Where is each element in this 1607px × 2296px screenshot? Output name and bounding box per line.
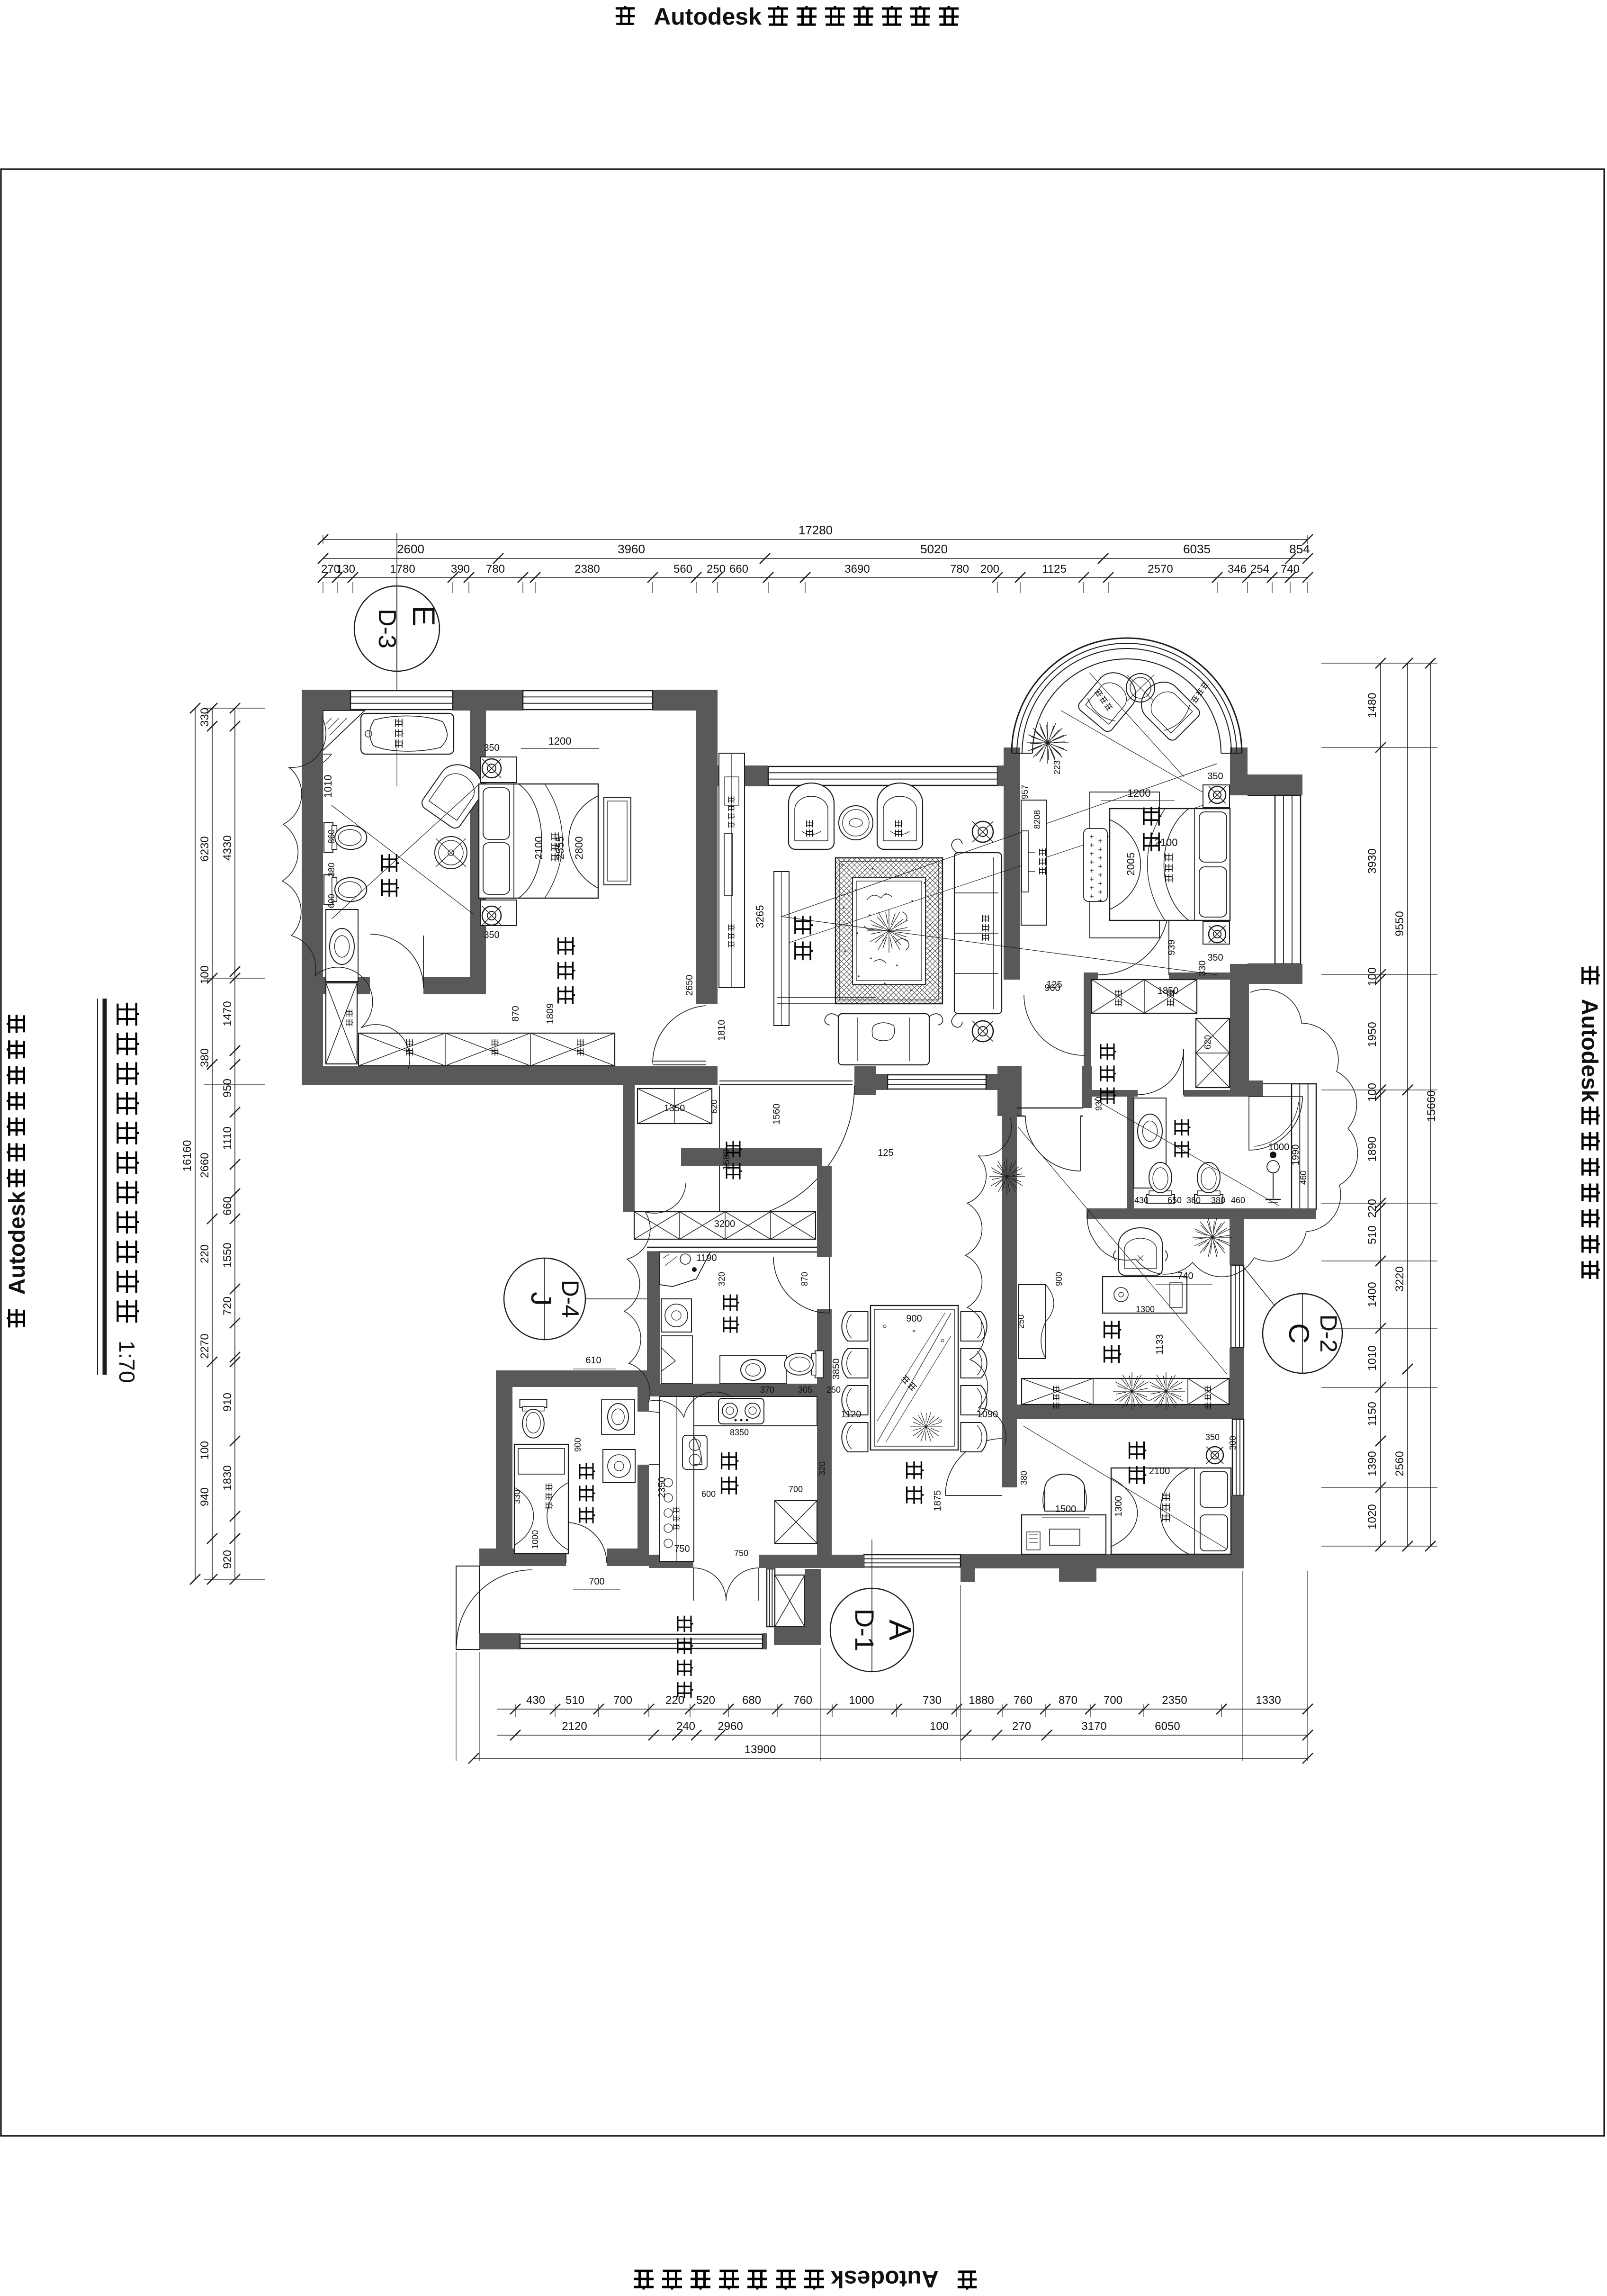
svg-text:460: 460	[1231, 1196, 1245, 1205]
svg-text:1500: 1500	[1055, 1504, 1077, 1514]
svg-text:1200: 1200	[548, 735, 572, 747]
svg-text:9550: 9550	[1393, 911, 1406, 936]
svg-text:3170: 3170	[1081, 1720, 1106, 1733]
svg-text:750: 750	[674, 1544, 690, 1554]
svg-text:3850: 3850	[831, 1359, 842, 1380]
svg-text:740: 740	[1281, 563, 1300, 576]
svg-text:2570: 2570	[1148, 563, 1173, 576]
svg-text:860: 860	[327, 829, 336, 844]
svg-text:2100: 2100	[1149, 1466, 1170, 1477]
svg-text:1125: 1125	[1042, 563, 1067, 576]
svg-text:1950: 1950	[1366, 1022, 1379, 1047]
svg-text:910: 910	[221, 1393, 234, 1412]
svg-text:1890: 1890	[1366, 1136, 1379, 1162]
svg-text:900: 900	[906, 1314, 922, 1324]
svg-text:520: 520	[696, 1694, 715, 1707]
svg-text:870: 870	[1059, 1694, 1077, 1707]
svg-text:250: 250	[1016, 1315, 1026, 1329]
svg-text:1830: 1830	[221, 1465, 234, 1490]
svg-text:1010: 1010	[1366, 1345, 1379, 1370]
svg-text:1000: 1000	[849, 1694, 874, 1707]
svg-text:660: 660	[221, 1197, 234, 1216]
svg-text:D-4: D-4	[557, 1280, 584, 1318]
svg-text:8208: 8208	[1032, 810, 1042, 829]
svg-text:2350: 2350	[1162, 1694, 1187, 1707]
svg-text:1875: 1875	[933, 1490, 943, 1512]
svg-text:350: 350	[484, 930, 499, 940]
svg-text:660: 660	[729, 563, 748, 576]
svg-text:300: 300	[1228, 1436, 1238, 1450]
svg-text:380: 380	[1211, 1196, 1225, 1205]
svg-text:610: 610	[585, 1355, 601, 1366]
svg-text:600: 600	[327, 894, 336, 908]
svg-text:680: 680	[742, 1694, 761, 1707]
svg-text:900: 900	[1054, 1272, 1064, 1286]
svg-text:2650: 2650	[684, 975, 695, 996]
svg-text:1190: 1190	[696, 1253, 717, 1263]
svg-text:320: 320	[717, 1272, 727, 1286]
svg-text:750: 750	[734, 1549, 748, 1558]
svg-text:C: C	[1283, 1323, 1315, 1343]
svg-text:1470: 1470	[221, 1001, 234, 1026]
svg-text:3690: 3690	[844, 563, 870, 576]
svg-text:940: 940	[198, 1487, 211, 1506]
svg-text:957: 957	[1020, 785, 1030, 799]
svg-text:1133: 1133	[1155, 1334, 1165, 1354]
svg-text:650: 650	[1167, 1196, 1182, 1205]
svg-text:780: 780	[486, 563, 505, 576]
svg-text:13900: 13900	[745, 1743, 776, 1756]
svg-text:2005: 2005	[1125, 853, 1137, 876]
svg-text:100: 100	[198, 1441, 211, 1460]
svg-text:A: A	[883, 1620, 918, 1640]
svg-text:510: 510	[566, 1694, 584, 1707]
svg-text:254: 254	[1250, 563, 1269, 576]
svg-text:1880: 1880	[969, 1694, 994, 1707]
svg-text:1480: 1480	[1366, 693, 1379, 718]
svg-text:380: 380	[198, 1048, 211, 1067]
svg-text:1400: 1400	[1366, 1282, 1379, 1307]
svg-text:220: 220	[665, 1694, 684, 1707]
svg-text:1000: 1000	[1268, 1142, 1290, 1153]
svg-text:1110: 1110	[221, 1126, 234, 1150]
svg-text:E: E	[406, 605, 441, 626]
svg-text:900: 900	[573, 1438, 583, 1452]
svg-text:854: 854	[1289, 542, 1310, 556]
svg-text:330: 330	[1197, 960, 1208, 976]
svg-text:700: 700	[613, 1694, 632, 1707]
svg-text:1010: 1010	[322, 775, 334, 798]
svg-text:2100: 2100	[533, 837, 545, 860]
svg-text:3265: 3265	[754, 905, 766, 928]
svg-text:3960: 3960	[618, 542, 645, 556]
svg-text:430: 430	[526, 1694, 545, 1707]
svg-text:560: 560	[673, 563, 692, 576]
svg-text:1300: 1300	[1113, 1496, 1124, 1517]
svg-text:700: 700	[789, 1485, 803, 1494]
svg-text:305: 305	[798, 1385, 812, 1395]
svg-text:16160: 16160	[181, 1140, 194, 1172]
svg-text:100: 100	[1366, 967, 1379, 986]
svg-text:350: 350	[484, 743, 499, 753]
svg-text:3220: 3220	[1393, 1266, 1406, 1291]
svg-text:Autodesk: Autodesk	[5, 1191, 30, 1295]
svg-text:1300: 1300	[1136, 1305, 1155, 1314]
svg-text:920: 920	[221, 1550, 234, 1569]
svg-text:4330: 4330	[221, 835, 234, 860]
svg-text:100: 100	[930, 1720, 949, 1733]
svg-text:1200: 1200	[1128, 787, 1151, 799]
svg-text:D-2: D-2	[1315, 1315, 1342, 1353]
svg-text:8350: 8350	[730, 1428, 749, 1437]
svg-text:380: 380	[327, 863, 336, 877]
svg-text:200: 200	[980, 563, 999, 576]
svg-text:1809: 1809	[545, 1003, 556, 1025]
svg-text:720: 720	[221, 1297, 234, 1315]
svg-text:J: J	[525, 1292, 557, 1306]
svg-text:330: 330	[198, 708, 211, 727]
svg-text:1990: 1990	[1291, 1144, 1301, 1166]
svg-text:939: 939	[1167, 939, 1177, 955]
svg-text:5020: 5020	[920, 542, 948, 556]
svg-text:3200: 3200	[714, 1219, 736, 1229]
svg-text:2800: 2800	[573, 837, 585, 860]
svg-text:430: 430	[1134, 1196, 1149, 1205]
svg-text:2960: 2960	[718, 1720, 743, 1733]
svg-text:1330: 1330	[1256, 1694, 1281, 1707]
svg-text:620: 620	[1203, 1035, 1212, 1049]
svg-text:220: 220	[1366, 1199, 1379, 1218]
svg-text:220: 220	[198, 1244, 211, 1263]
svg-text:130: 130	[336, 563, 355, 576]
svg-text:Autodesk: Autodesk	[831, 2266, 939, 2292]
svg-text:223: 223	[1052, 760, 1062, 774]
svg-text:17280: 17280	[799, 523, 833, 537]
svg-text:330: 330	[512, 1490, 522, 1504]
svg-text:346: 346	[1228, 563, 1247, 576]
svg-text:2350: 2350	[657, 1477, 667, 1498]
svg-text:Autodesk: Autodesk	[1577, 999, 1602, 1103]
svg-text:350: 350	[1207, 953, 1223, 963]
svg-text:1020: 1020	[1366, 1504, 1379, 1529]
svg-text:350: 350	[1205, 1432, 1220, 1442]
svg-text:125: 125	[878, 1148, 893, 1158]
svg-text:370: 370	[760, 1385, 774, 1395]
svg-text:780: 780	[950, 563, 969, 576]
svg-text:2270: 2270	[198, 1333, 211, 1359]
svg-text:2660: 2660	[198, 1153, 211, 1178]
svg-text:6230: 6230	[198, 836, 211, 861]
svg-text:760: 760	[1014, 1694, 1032, 1707]
svg-text:380: 380	[1019, 1471, 1029, 1485]
svg-text:1000: 1000	[530, 1530, 540, 1549]
svg-text:100: 100	[1366, 1083, 1379, 1102]
svg-text:D-1: D-1	[850, 1609, 880, 1651]
svg-text:250: 250	[826, 1385, 841, 1395]
svg-text:700: 700	[1104, 1694, 1122, 1707]
svg-text:320: 320	[817, 1461, 827, 1476]
svg-text:1150: 1150	[1366, 1402, 1379, 1426]
svg-text:250: 250	[707, 563, 726, 576]
svg-text:Autodesk: Autodesk	[654, 3, 762, 30]
svg-text:600: 600	[701, 1489, 716, 1499]
svg-text:2120: 2120	[562, 1720, 587, 1733]
svg-text:460: 460	[1299, 1171, 1308, 1185]
svg-text:870: 870	[511, 1006, 521, 1021]
svg-text:760: 760	[793, 1694, 812, 1707]
svg-text:360: 360	[1186, 1196, 1201, 1205]
svg-text:240: 240	[676, 1720, 695, 1733]
svg-text:1120: 1120	[841, 1409, 861, 1420]
svg-text:1780: 1780	[390, 563, 415, 576]
svg-text:100: 100	[198, 965, 211, 984]
svg-text:510: 510	[1366, 1225, 1379, 1244]
svg-text:1560: 1560	[772, 1104, 782, 1125]
svg-text:390: 390	[451, 563, 470, 576]
svg-text:730: 730	[923, 1694, 942, 1707]
svg-text:870: 870	[800, 1272, 809, 1286]
svg-text:1350: 1350	[664, 1103, 685, 1114]
svg-text:960: 960	[1044, 983, 1060, 993]
svg-text:620: 620	[709, 1099, 719, 1114]
svg-text:6050: 6050	[1155, 1720, 1180, 1733]
svg-text:6035: 6035	[1183, 542, 1211, 556]
svg-text:740: 740	[1177, 1271, 1193, 1281]
svg-text:15660: 15660	[1425, 1090, 1438, 1122]
svg-text:950: 950	[221, 1079, 234, 1098]
svg-text:1550: 1550	[221, 1243, 234, 1268]
svg-text:3930: 3930	[1366, 848, 1379, 873]
svg-text:1810: 1810	[717, 1020, 727, 1041]
svg-text:2380: 2380	[575, 563, 600, 576]
svg-text:2560: 2560	[1393, 1451, 1406, 1476]
svg-text:2600: 2600	[397, 542, 424, 556]
svg-text:1:70: 1:70	[115, 1341, 139, 1383]
svg-text:350: 350	[1207, 771, 1223, 782]
svg-text:700: 700	[589, 1576, 604, 1587]
svg-text:270: 270	[1012, 1720, 1031, 1733]
svg-text:1390: 1390	[1366, 1451, 1379, 1476]
